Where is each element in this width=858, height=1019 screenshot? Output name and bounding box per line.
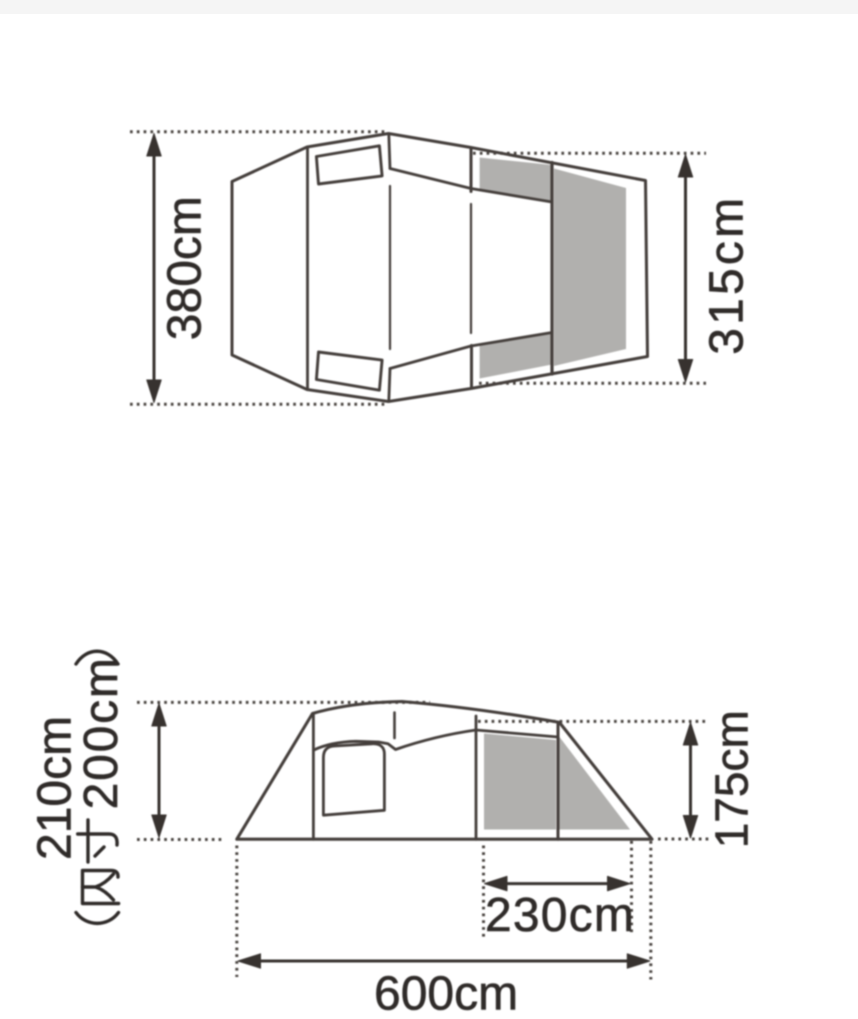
svg-text:230cm: 230cm bbox=[485, 889, 635, 942]
svg-text:380cm: 380cm bbox=[159, 196, 212, 340]
svg-text:600cm: 600cm bbox=[374, 968, 518, 1019]
svg-text:315cm: 315cm bbox=[701, 195, 754, 355]
svg-text:175cm: 175cm bbox=[706, 710, 758, 848]
svg-text:200cm: 200cm bbox=[75, 656, 128, 809]
svg-text:210cm: 210cm bbox=[29, 716, 82, 860]
